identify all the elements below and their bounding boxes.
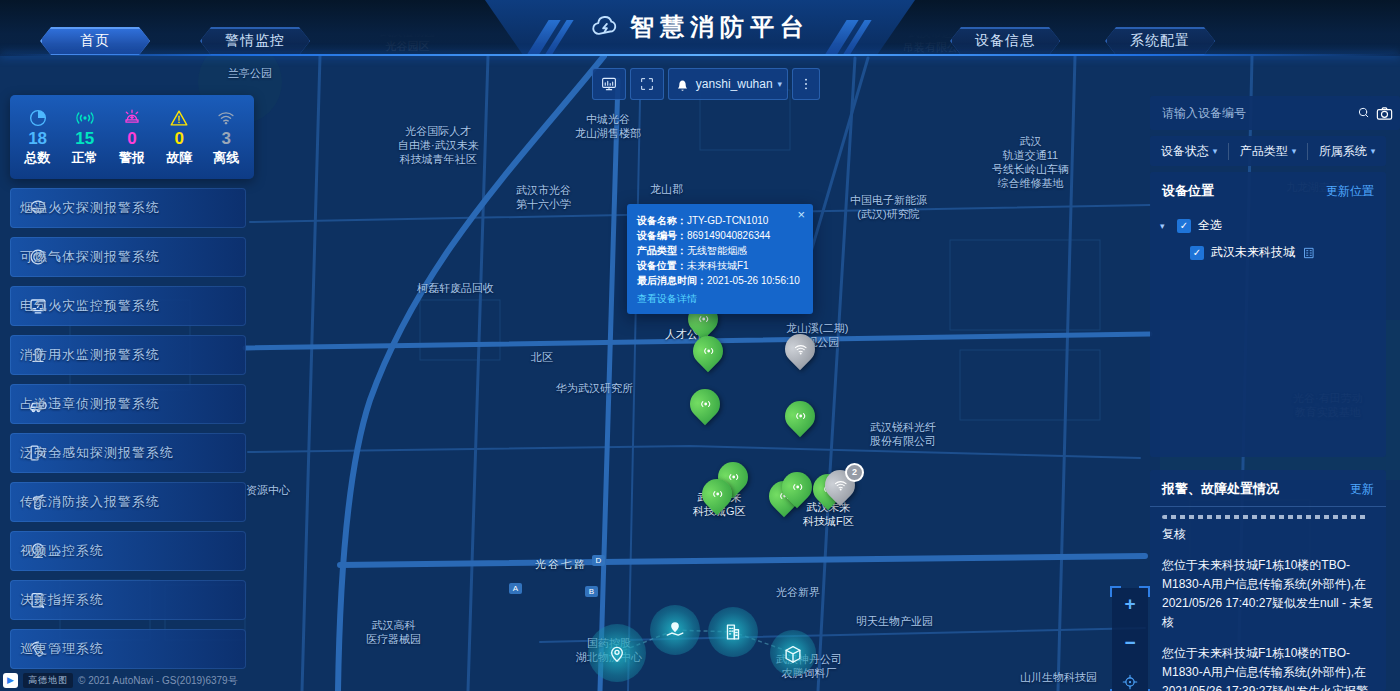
fullscreen-icon — [639, 76, 655, 92]
dashboard-button[interactable] — [592, 68, 626, 100]
popup-field: 设备名称：JTY-GD-TCN1010 — [637, 213, 803, 228]
device-marker-offline[interactable] — [785, 334, 815, 364]
smart-fire-platform: 中城龙山湖兰亭公园武汉植物园 光谷园区武汉市达诚 吊装有限公司光谷国际人才 自由… — [0, 0, 1400, 691]
sidebar-item-label: 巡更管理系统 — [20, 642, 104, 656]
wifi-off-icon — [215, 107, 237, 129]
chevron-down-icon: ▾ — [778, 79, 783, 89]
device-location-title: 设备位置 — [1162, 182, 1214, 200]
wifi-icon — [832, 477, 849, 494]
popup-field: 产品类型：无线智能烟感 — [637, 243, 803, 258]
update-location-link[interactable]: 更新位置 — [1326, 183, 1374, 200]
nav-label: 首页 — [40, 27, 150, 55]
location-tree: ▾✓全选✓武汉未来科技城 — [1150, 208, 1386, 270]
device-marker-online[interactable] — [702, 479, 732, 509]
wifi-icon — [792, 341, 809, 358]
popup-field: 最后消息时间：2021-05-26 10:56:10 — [637, 273, 803, 288]
sidebar-item[interactable]: 视频监控系统› — [10, 531, 246, 571]
sidebar-item[interactable]: 消防用水监测报警系统› — [10, 335, 246, 375]
close-icon[interactable]: × — [797, 209, 805, 221]
system-menu: 烟温火灾探测报警系统›可燃气体探测报警系统›电气火灾监控预警系统›消防用水监测报… — [10, 188, 246, 669]
sidebar-item[interactable]: 泛安全感知探测报警系统› — [10, 433, 246, 473]
sidebar-item-label: 泛安全感知探测报警系统 — [20, 446, 174, 460]
popup-field-label: 设备名称： — [637, 215, 687, 226]
filter-dropdown[interactable]: 设备状态▾ — [1150, 143, 1228, 160]
popup-field-value: JTY-GD-TCN1010 — [687, 215, 768, 226]
device-marker-online[interactable] — [693, 336, 723, 366]
app-title-text: 智慧消防平台 — [630, 11, 810, 43]
sidebar-item-label: 电气火灾监控预警系统 — [20, 299, 160, 313]
stat-label: 总数 — [25, 149, 51, 167]
corner-bracket — [1110, 586, 1121, 597]
clipped-alert-line — [1162, 515, 1368, 519]
stat-value: 0 — [174, 130, 183, 148]
popup-field-label: 设备编号： — [637, 230, 687, 241]
filter-label: 设备状态 — [1161, 143, 1209, 160]
device-location-panel: 设备位置 更新位置 ▾✓全选✓武汉未来科技城 — [1150, 172, 1386, 457]
popup-field-value: 2021-05-26 10:56:10 — [707, 275, 800, 286]
refresh-alerts-link[interactable]: 更新 — [1350, 481, 1374, 498]
nav-label: 系统配置 — [1105, 27, 1215, 55]
sidebar-item[interactable]: 烟温火灾探测报警系统› — [10, 188, 246, 228]
alert-item: 您位于未来科技城F1栋10楼的TBO-M1830-A用户信息传输系统(外部件),… — [1162, 644, 1374, 691]
alert-text: 复核 — [1162, 527, 1186, 541]
more-icon — [798, 76, 814, 92]
signal-icon — [74, 107, 96, 129]
popup-field: 设备编号：869149040826344 — [637, 228, 803, 243]
tree-node[interactable]: ▾✓全选 — [1160, 212, 1376, 239]
popup-field-value: 869149040826344 — [687, 230, 770, 241]
chevron-down-icon[interactable]: ▾ — [1160, 221, 1170, 231]
chevron-down-icon: ▾ — [1213, 146, 1218, 156]
tree-node[interactable]: ✓武汉未来科技城 — [1160, 239, 1376, 266]
checkbox[interactable]: ✓ — [1190, 246, 1204, 260]
pin-head — [696, 473, 738, 515]
sidebar-item[interactable]: 电气火灾监控预警系统› — [10, 286, 246, 326]
cluster-count-badge: 2 — [845, 463, 864, 482]
pin-head — [687, 330, 729, 372]
alert-text: 您位于未来科技城F1栋10楼的TBO-M1830-A用户信息传输系统(外部件),… — [1162, 558, 1373, 629]
zoom-in-button[interactable]: + — [1124, 595, 1135, 613]
stat-label: 警报 — [119, 149, 145, 167]
device-search-box — [1150, 96, 1382, 130]
stat-fault: 0故障 — [166, 107, 192, 167]
popup-field-label: 产品类型： — [637, 245, 687, 256]
alerts-panel: 报警、故障处置情况 更新 复核您位于未来科技城F1栋10楼的TBO-M1830-… — [1150, 470, 1386, 691]
tree-node-label: 武汉未来科技城 — [1211, 244, 1295, 261]
device-marker-online[interactable] — [690, 389, 720, 419]
sidebar-item-label: 占道违章侦测报警系统 — [20, 397, 160, 411]
map-zoom-control: + − — [1112, 588, 1148, 691]
filter-dropdown[interactable]: 所属系统▾ — [1307, 143, 1386, 160]
filter-label: 产品类型 — [1240, 143, 1288, 160]
sidebar-item[interactable]: 决策指挥系统› — [10, 580, 246, 620]
view-device-detail-link[interactable]: 查看设备详情 — [637, 291, 697, 306]
zoom-out-button[interactable]: − — [1124, 634, 1135, 652]
stat-label: 故障 — [166, 149, 192, 167]
pin-head — [779, 395, 821, 437]
sidebar-item[interactable]: 可燃气体探测报警系统› — [10, 237, 246, 277]
pie-icon — [27, 107, 49, 129]
nav-home[interactable]: 首页 — [40, 27, 150, 55]
checkbox[interactable]: ✓ — [1177, 219, 1191, 233]
chevron-down-icon: ▾ — [1292, 146, 1297, 156]
nav-device-info[interactable]: 设备信息 — [950, 27, 1060, 55]
stat-value: 15 — [75, 130, 94, 148]
warning-icon — [168, 107, 190, 129]
broadcast-icon — [792, 408, 809, 425]
sidebar-item-label: 决策指挥系统 — [20, 593, 104, 607]
bell-icon — [674, 76, 691, 93]
alarm-icon — [121, 107, 143, 129]
sidebar-item-label: 烟温火灾探测报警系统 — [20, 201, 160, 215]
sidebar-item[interactable]: 巡更管理系统› — [10, 629, 246, 669]
camera-icon — [1375, 104, 1394, 123]
cloud-logo-icon — [590, 12, 620, 42]
popup-field: 设备位置：未来科技城F1 — [637, 258, 803, 273]
alert-item: 复核 — [1162, 515, 1374, 544]
filter-dropdown[interactable]: 产品类型▾ — [1228, 143, 1307, 160]
device-stats-panel: 18总数15正常0警报0故障3离线 — [10, 95, 254, 179]
fullscreen-button[interactable] — [630, 68, 664, 100]
stat-label: 离线 — [213, 149, 239, 167]
more-button[interactable] — [792, 68, 820, 100]
nav-system-config[interactable]: 系统配置 — [1105, 27, 1215, 55]
device-popup: × 设备名称：JTY-GD-TCN1010设备编号：86914904082634… — [627, 204, 813, 314]
corner-bracket — [1139, 586, 1150, 597]
alerts-title: 报警、故障处置情况 — [1162, 480, 1279, 498]
user-label: yanshi_wuhan — [696, 77, 773, 91]
alert-text: 您位于未来科技城F1栋10楼的TBO-M1830-A用户信息传输系统(外部件),… — [1162, 646, 1368, 691]
copyright-text: © 2021 AutoNavi - GS(2019)6379号 — [78, 674, 238, 688]
broadcast-icon — [709, 486, 726, 503]
popup-field-label: 最后消息时间： — [637, 275, 707, 286]
popup-field-value: 未来科技城F1 — [687, 260, 749, 271]
sidebar-item-label: 视频监控系统 — [20, 544, 104, 558]
stat-offline: 3离线 — [213, 107, 239, 167]
search-input[interactable] — [1160, 105, 1356, 121]
camera-scan-button[interactable] — [1368, 96, 1400, 130]
locate-button[interactable] — [1121, 673, 1139, 691]
pin-head — [684, 383, 726, 425]
broadcast-icon — [697, 396, 714, 413]
user-menu[interactable]: yanshi_wuhan ▾ — [668, 68, 788, 100]
top-bar: 智慧消防平台 首页警情监控设备信息系统配置 — [0, 0, 1400, 56]
popup-field-value: 无线智能烟感 — [687, 245, 747, 256]
app-title: 智慧消防平台 — [590, 11, 810, 43]
amap-badge: 高德地图 — [23, 673, 73, 688]
filter-label: 所属系统 — [1319, 143, 1367, 160]
tree-node-label: 全选 — [1198, 217, 1222, 234]
stat-value: 18 — [28, 130, 47, 148]
sidebar-item-label: 可燃气体探测报警系统 — [20, 250, 160, 264]
stat-total: 18总数 — [25, 107, 51, 167]
stat-label: 正常 — [72, 149, 98, 167]
dashboard-icon — [600, 75, 618, 93]
device-filters: 设备状态▾产品类型▾所属系统▾ — [1150, 136, 1386, 166]
sidebar-item-label: 传统消防接入报警系统 — [20, 495, 160, 509]
nav-label: 设备信息 — [950, 27, 1060, 55]
stat-value: 0 — [127, 130, 136, 148]
building-icon — [1302, 246, 1316, 260]
amap-logo-icon: ▶ — [3, 673, 18, 688]
device-marker-online[interactable] — [785, 401, 815, 431]
sidebar-item[interactable]: 传统消防接入报警系统› — [10, 482, 246, 522]
chevron-down-icon: ▾ — [1371, 146, 1376, 156]
broadcast-icon — [700, 343, 717, 360]
device-marker-online[interactable] — [782, 472, 812, 502]
sidebar-item[interactable]: 占道违章侦测报警系统› — [10, 384, 246, 424]
nav-label: 警情监控 — [200, 27, 310, 55]
broadcast-icon — [789, 479, 806, 496]
stat-value: 3 — [222, 130, 231, 148]
nav-alarm-monitor[interactable]: 警情监控 — [200, 27, 310, 55]
map-attribution: ▶ 高德地图 © 2021 AutoNavi - GS(2019)6379号 — [3, 673, 238, 688]
stat-normal: 15正常 — [72, 107, 98, 167]
stat-alarm: 0警报 — [119, 107, 145, 167]
alert-item: 您位于未来科技城F1栋10楼的TBO-M1830-A用户信息传输系统(外部件),… — [1162, 556, 1374, 632]
popup-field-label: 设备位置： — [637, 260, 687, 271]
device-marker-offline[interactable]: 2 — [825, 470, 855, 500]
sidebar-item-label: 消防用水监测报警系统 — [20, 348, 160, 362]
pin-head — [779, 328, 821, 370]
